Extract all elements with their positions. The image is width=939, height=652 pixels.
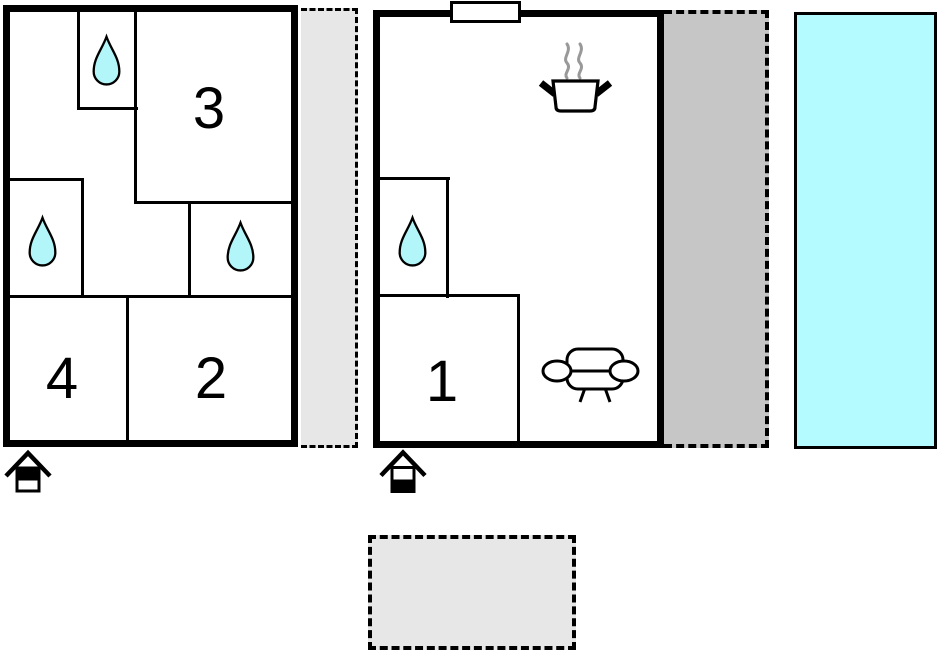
room-label-1: 1: [426, 353, 458, 411]
wall: [81, 178, 84, 298]
wall: [446, 177, 449, 298]
entrance-house-icon: [379, 448, 427, 495]
wall: [134, 201, 291, 204]
sofa-icon: [540, 344, 640, 404]
wall: [77, 107, 138, 110]
terrace-bottom: [368, 535, 576, 650]
wall: [380, 294, 520, 297]
terrace-strip-left: [301, 8, 358, 448]
wall: [10, 178, 84, 181]
water-drop-icon: [26, 214, 59, 271]
swimming-pool: [794, 12, 937, 449]
water-drop-icon: [224, 219, 257, 276]
wall: [188, 201, 191, 297]
veranda-strip-right: [664, 10, 769, 448]
water-drop-icon: [90, 33, 123, 90]
entrance-house-icon: [4, 449, 52, 495]
water-drop-icon: [396, 214, 429, 271]
wall: [10, 295, 291, 298]
wall: [517, 294, 520, 441]
wall: [77, 12, 80, 110]
wall: [380, 177, 450, 180]
floor-plan: 3 4 2 1: [0, 0, 939, 652]
cooking-pot-icon: [538, 38, 613, 114]
room-label-4: 4: [46, 350, 78, 408]
wall: [126, 295, 129, 440]
room-label-3: 3: [193, 80, 225, 138]
door-opening: [450, 1, 521, 23]
room-label-2: 2: [195, 350, 227, 408]
